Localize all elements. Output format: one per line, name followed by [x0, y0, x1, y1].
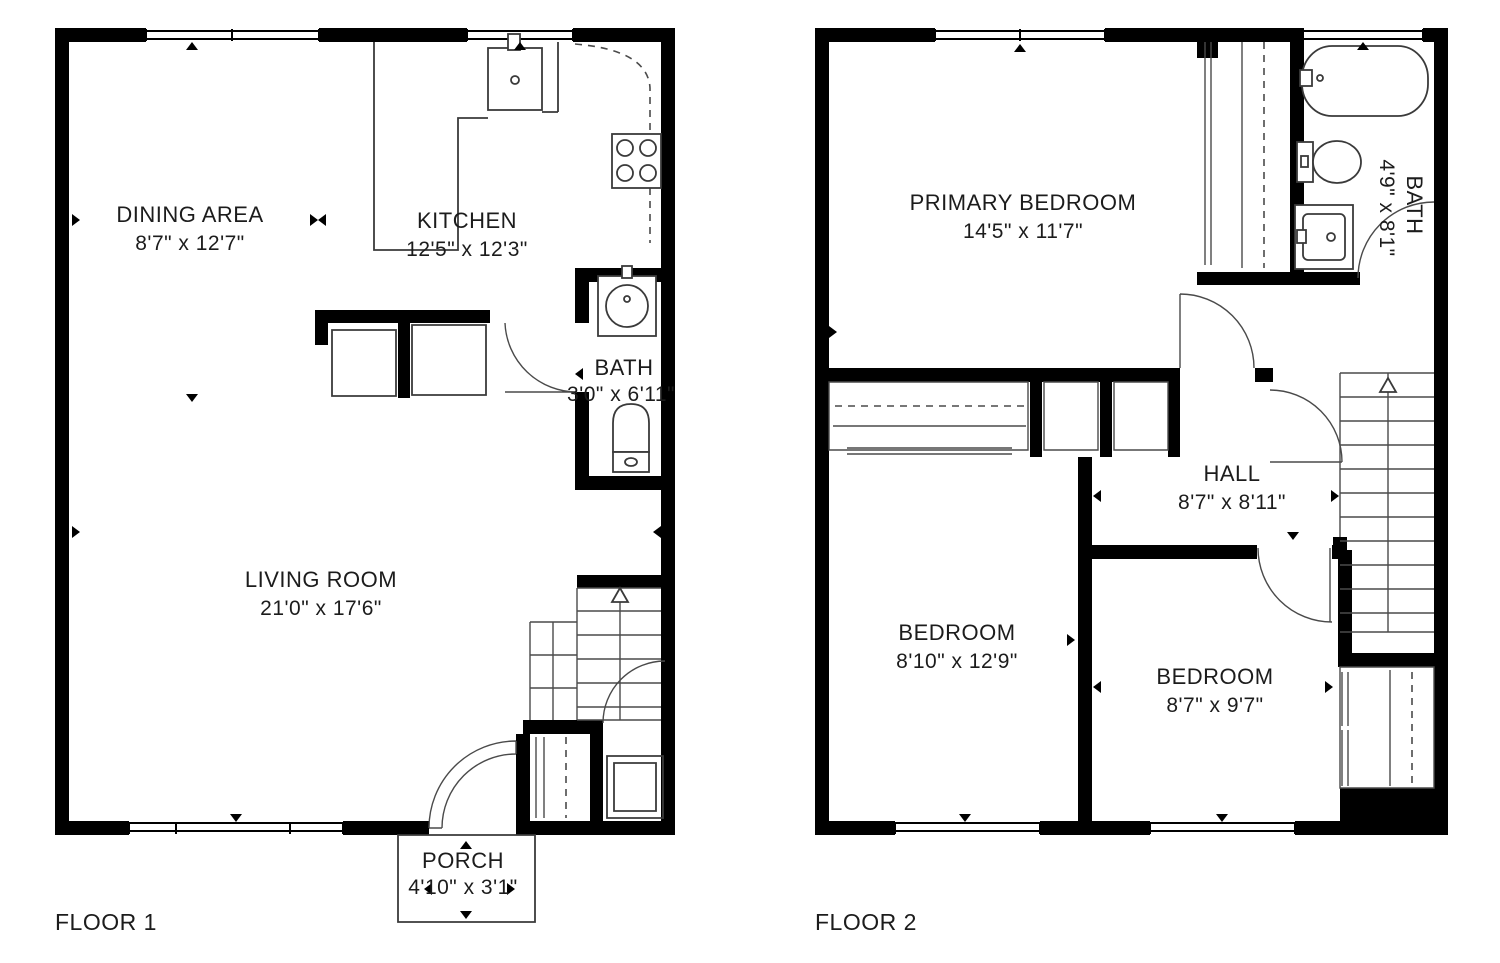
- stairs-direction-arrow: [612, 588, 628, 602]
- door-swing-icon: [1180, 294, 1254, 368]
- room-dims-porch: 4'10" x 3'1": [408, 876, 518, 899]
- room-label-primary-bedroom: PRIMARY BEDROOM: [910, 190, 1137, 215]
- stairs-up-icon: [530, 588, 661, 720]
- room-label-porch: PORCH: [422, 848, 504, 873]
- sink-icon: [598, 266, 656, 336]
- room-label-bath-floor2: BATH: [1402, 175, 1427, 234]
- closet-outline: [1340, 667, 1434, 788]
- room-label-kitchen: KITCHEN: [417, 208, 517, 233]
- bathtub-drain: [1317, 75, 1323, 81]
- stair-treads: [1340, 373, 1434, 632]
- room-label-bedroom-right: BEDROOM: [1156, 664, 1273, 689]
- floorplan-drawing: DINING AREA 8'7" x 12'7" KITCHEN 12'5" x…: [0, 0, 1500, 963]
- room-label-living-room: LIVING ROOM: [245, 567, 397, 592]
- sink-icon: [1295, 205, 1353, 269]
- toilet-flush: [1301, 156, 1308, 167]
- sink-drain: [1327, 233, 1335, 241]
- door-swing-icon: [603, 661, 665, 723]
- utility-box: [607, 756, 663, 818]
- room-label-bath-floor1: BATH: [594, 355, 653, 380]
- door-swing-icon: [1270, 390, 1342, 462]
- room-dims-hall: 8'7" x 8'11": [1178, 491, 1286, 514]
- toilet-icon: [613, 404, 649, 472]
- stove-icon: [612, 134, 661, 188]
- room-label-bedroom-left: BEDROOM: [898, 620, 1015, 645]
- floor2-plan: PRIMARY BEDROOM 14'5" x 11'7" BATH 4'9" …: [815, 28, 1448, 935]
- stove-burner: [640, 165, 656, 181]
- stairs-direction-arrow: [1380, 378, 1396, 392]
- stove-burner: [617, 165, 633, 181]
- toilet-icon: [1297, 141, 1361, 183]
- room-dims-bath-floor2: 4'9" x 8'1": [1375, 159, 1398, 256]
- room-dims-bedroom-right: 8'7" x 9'7": [1166, 694, 1263, 717]
- room-dims-primary-bedroom: 14'5" x 11'7": [963, 220, 1083, 243]
- sink-basin: [606, 285, 648, 327]
- dimension-arrows: [829, 42, 1369, 822]
- stove-burner: [640, 140, 656, 156]
- room-dims-living-room: 21'0" x 17'6": [260, 597, 382, 620]
- sink-faucet: [622, 266, 632, 278]
- sink-faucet: [1297, 230, 1306, 243]
- room-dims-kitchen: 12'5" x 12'3": [406, 238, 528, 261]
- floor1-plan: DINING AREA 8'7" x 12'7" KITCHEN 12'5" x…: [55, 28, 675, 935]
- sink-icon: [488, 34, 542, 110]
- closet-doors: [536, 737, 544, 818]
- stair-treads: [530, 588, 661, 720]
- floor1-title: FLOOR 1: [55, 909, 157, 935]
- toilet-flush: [625, 458, 637, 466]
- door-swing-icon: [1258, 548, 1332, 622]
- bathtub-icon: [1300, 46, 1428, 116]
- window-icon: [129, 29, 573, 834]
- room-dims-bedroom-left: 8'10" x 12'9": [896, 650, 1018, 673]
- floorplan-page: DINING AREA 8'7" x 12'7" KITCHEN 12'5" x…: [0, 0, 1500, 963]
- floor1-walls: [55, 28, 675, 835]
- stairs-up-icon: [1340, 373, 1434, 632]
- room-label-dining-area: DINING AREA: [116, 202, 263, 227]
- toilet-bowl: [1313, 141, 1361, 183]
- room-label-hall: HALL: [1203, 461, 1260, 486]
- closet-doors: [1205, 42, 1242, 268]
- room-dims-bath-floor1: 3'0" x 6'11": [567, 383, 675, 406]
- sink-drain: [511, 76, 519, 84]
- room-dims-dining-area: 8'7" x 12'7": [135, 232, 245, 255]
- sink-drain: [624, 296, 630, 302]
- closet-outline: [829, 382, 1028, 454]
- floor2-title: FLOOR 2: [815, 909, 917, 935]
- toilet-bowl: [613, 404, 649, 452]
- sink-basin: [1303, 214, 1345, 260]
- stove-burner: [617, 140, 633, 156]
- door-swing-icon: [429, 741, 516, 828]
- bathtub-faucet: [1300, 70, 1312, 86]
- door-swing-icon: [505, 323, 577, 392]
